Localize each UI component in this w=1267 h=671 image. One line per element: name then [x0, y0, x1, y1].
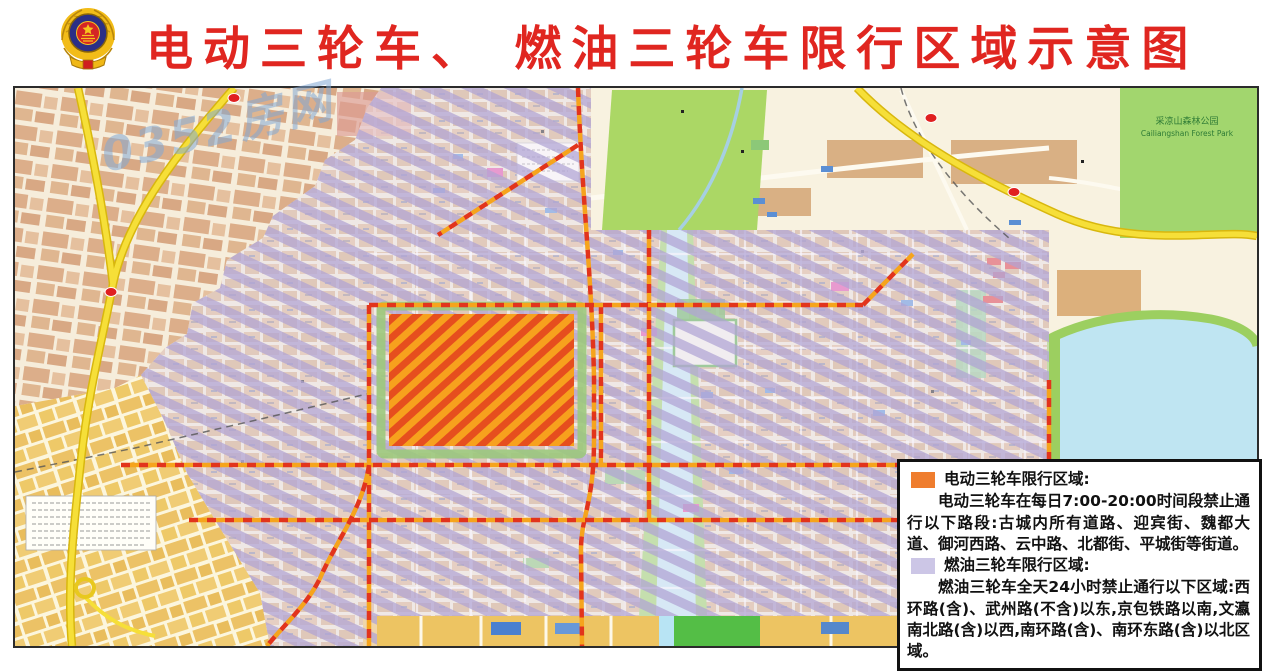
electric-zone-swatch	[911, 472, 935, 488]
legend-electric-heading: 电动三轮车限行区域:	[944, 469, 1090, 490]
forest-park: 采凉山森林公园 Cailiangshan Forest Park	[1120, 88, 1257, 238]
legend-electric-row: 电动三轮车限行区域:	[911, 469, 1250, 490]
legend-electric-body: 电动三轮车在每日7:00-20:00时间段禁止通行以下路段:古城内所有道路、迎宾…	[907, 491, 1250, 555]
street-index-box	[26, 496, 156, 550]
police-badge-icon	[56, 4, 120, 72]
page: { "header": { "title": "电动三轮车、 燃油三轮车限行区域…	[0, 0, 1267, 658]
forest-park-label-en: Cailiangshan Forest Park	[1141, 129, 1234, 138]
legend: 电动三轮车限行区域: 电动三轮车在每日7:00-20:00时间段禁止通行以下路段…	[897, 459, 1262, 671]
legend-fuel-body: 燃油三轮车全天24小时禁止通行以下区域:西环路(含)、武州路(不含)以东,京包铁…	[907, 577, 1250, 662]
legend-fuel-row: 燃油三轮车限行区域:	[911, 555, 1250, 576]
electric-restricted-zone	[389, 314, 574, 446]
page-title: 电动三轮车、 燃油三轮车限行区域示意图	[146, 10, 1198, 79]
north-park	[602, 90, 767, 230]
title-bar: 电动三轮车、 燃油三轮车限行区域示意图	[0, 0, 1267, 86]
lake	[1047, 314, 1257, 463]
forest-park-label-cn: 采凉山森林公园	[1155, 115, 1218, 127]
fuel-zone-swatch	[911, 558, 935, 574]
legend-fuel-heading: 燃油三轮车限行区域:	[944, 555, 1090, 576]
